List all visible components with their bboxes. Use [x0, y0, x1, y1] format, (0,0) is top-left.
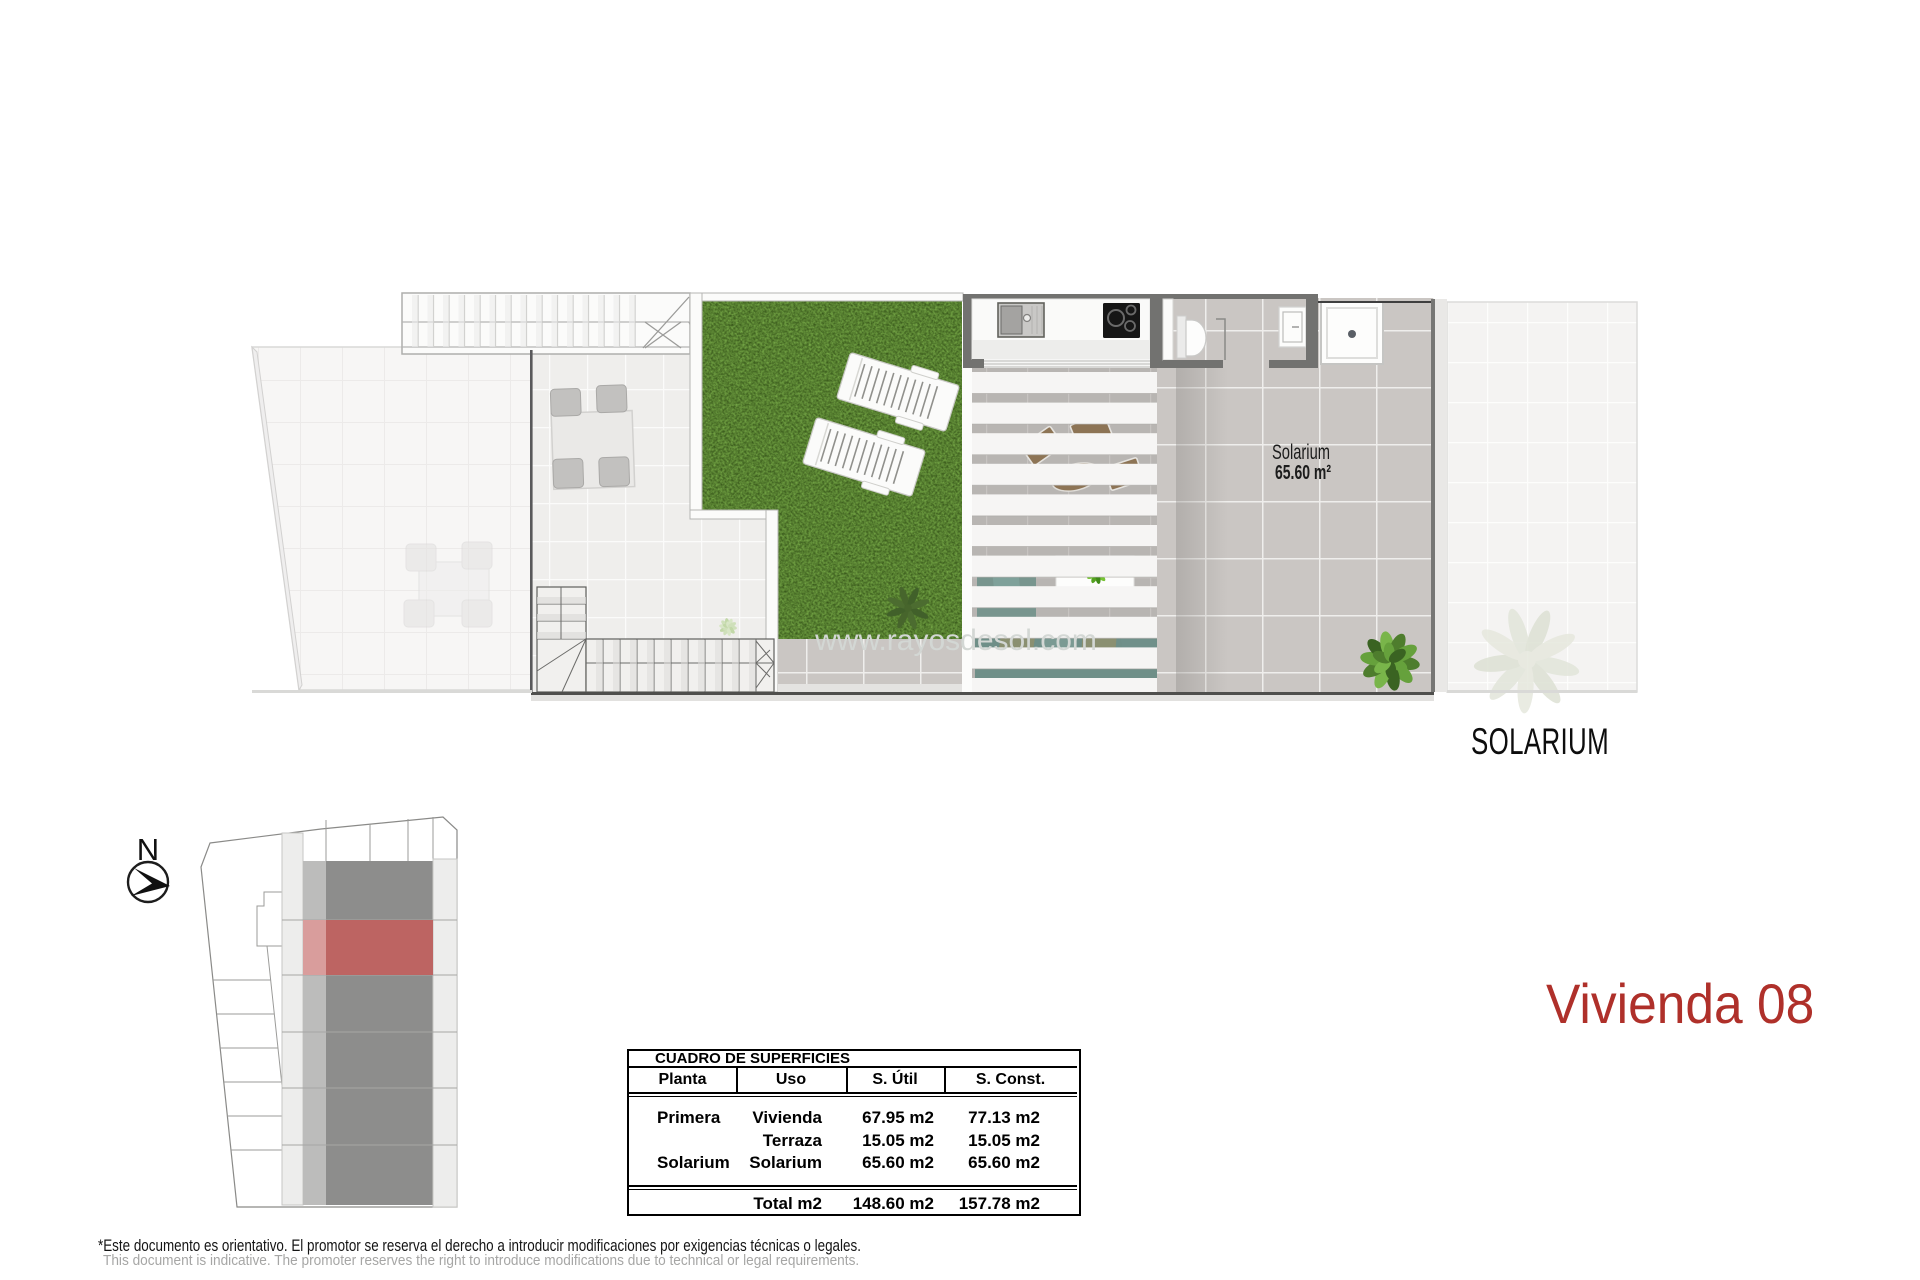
svg-text:65.60 m²: 65.60 m² [1275, 462, 1331, 484]
svg-text:www.rayosdesol.com: www.rayosdesol.com [814, 624, 1097, 657]
svg-text:Solarium: Solarium [1272, 441, 1330, 464]
svg-text:N: N [137, 832, 159, 867]
